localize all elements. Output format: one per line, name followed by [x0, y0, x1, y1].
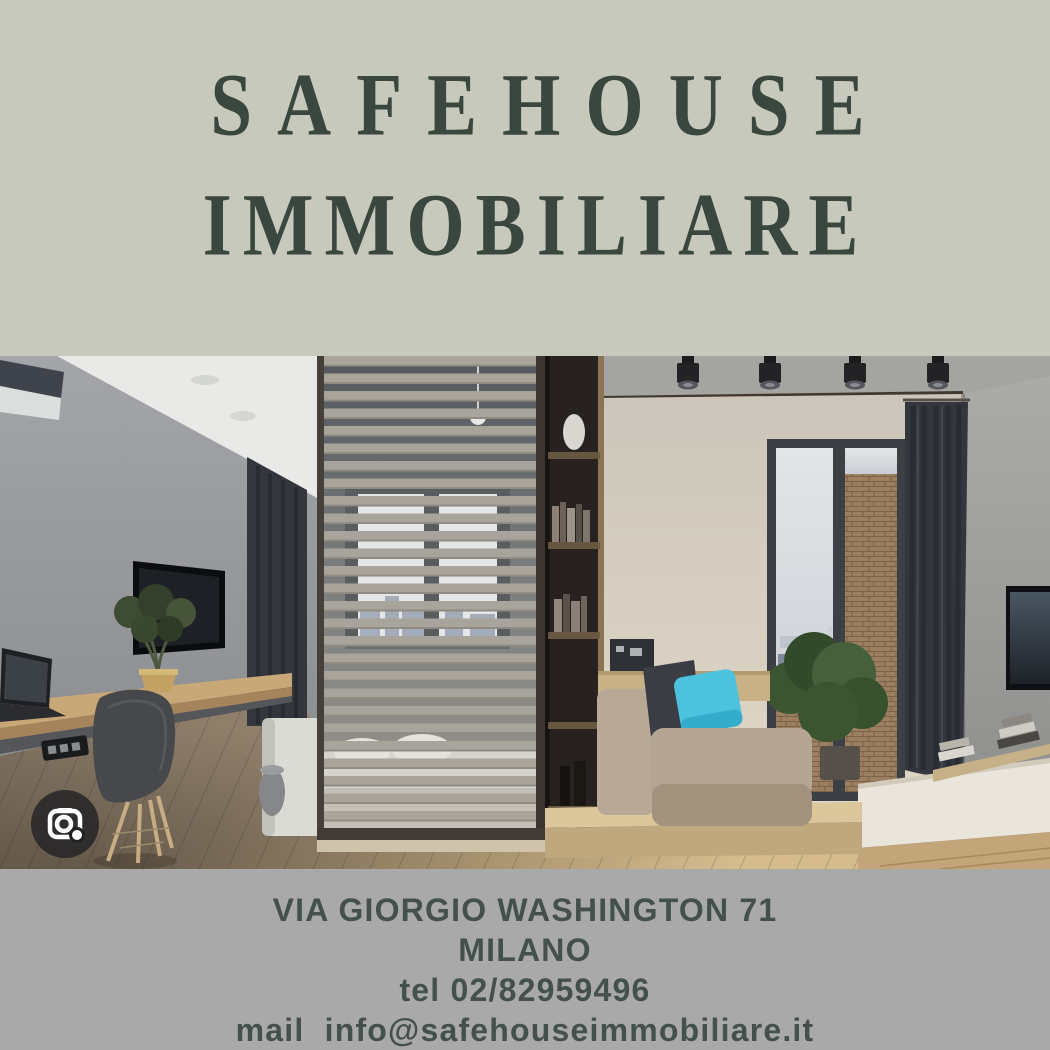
cyan-pillow: [673, 668, 744, 736]
right-curtain: [903, 400, 970, 776]
footer-band: VIA GIORGIO WASHINGTON 71 MILANO tel 02/…: [0, 869, 1050, 1050]
bed-corner: [259, 718, 324, 836]
google-lens-camera-icon: [43, 802, 87, 846]
phone-line: tel 02/82959496: [0, 970, 1050, 1010]
city-line: MILANO: [0, 930, 1050, 970]
email-line: mail info@safehouseimmobiliare.it: [0, 1010, 1050, 1050]
real-estate-flyer: SAFEHOUSE IMMOBILIARE: [0, 0, 1050, 1050]
apartment-photo[interactable]: [0, 356, 1050, 869]
bookshelf: [545, 356, 604, 850]
apartment-photo-scene: [0, 356, 1050, 869]
right-wall-tv: [1006, 586, 1050, 690]
agency-name-line1: SAFEHOUSE: [0, 55, 1050, 156]
address-line: VIA GIORGIO WASHINGTON 71: [0, 890, 1050, 930]
header-band: SAFEHOUSE IMMOBILIARE: [0, 0, 1050, 356]
slatted-room-divider: [317, 356, 552, 852]
google-lens-button[interactable]: [31, 790, 99, 858]
agency-name-line2: IMMOBILIARE: [0, 175, 1050, 276]
